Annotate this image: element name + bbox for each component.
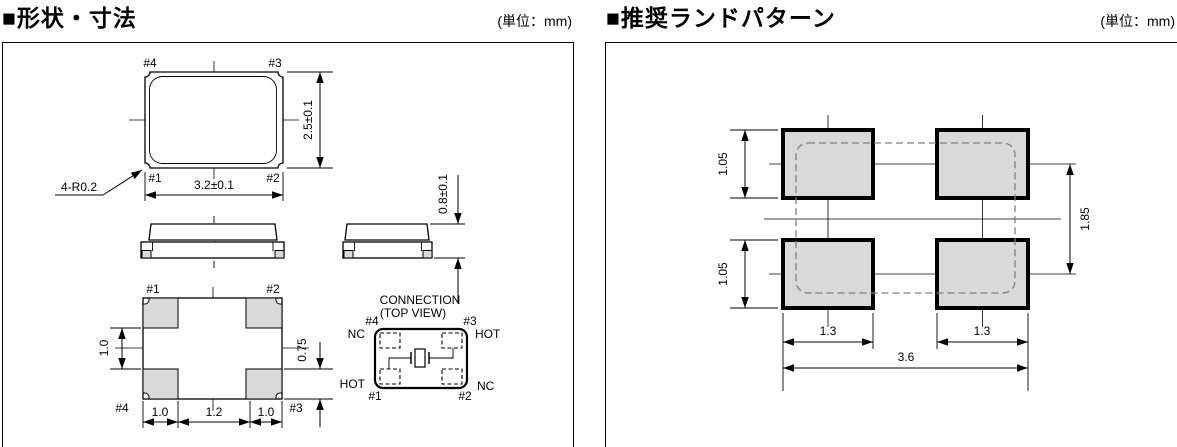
- land-pad-bottom-right: [937, 240, 1028, 308]
- land-pad-top-right: [937, 130, 1028, 198]
- left-panel-title: ■形状・寸法: [2, 4, 137, 34]
- top-view-width-dim: 3.2±0.1: [194, 178, 234, 192]
- bottom-view-pad-height-dim: 0.75: [295, 338, 309, 362]
- top-view-pad4-label: #4: [143, 56, 157, 70]
- bottom-pad-1: [143, 298, 178, 328]
- overall-width-dim: 3.6: [898, 350, 915, 364]
- datasheet-drawing-section: ■形状・寸法 (単位：mm) #4 #3 #1 #2 2.5±0.1: [0, 0, 1177, 447]
- connection-pad4-label: #4: [365, 314, 379, 328]
- left-panel-header: ■形状・寸法 (単位：mm): [2, 4, 572, 34]
- land-pad-bottom-left: [783, 240, 873, 308]
- connection-diagram: CONNECTION (TOP VIEW) #4 #3 NC HOT: [340, 293, 501, 403]
- bottom-view-pad3-label: #3: [289, 401, 303, 415]
- land-pattern-drawing: 1.05 1.05 1.85 1.3 1.3 3.6: [606, 43, 1177, 447]
- bottom-pad-3: [246, 369, 282, 399]
- connection-pad2-label: #2: [458, 389, 472, 403]
- bottom-pad-4: [143, 369, 178, 399]
- side-view-side: 0.8±0.1: [343, 174, 465, 303]
- right-panel-header: ■推奨ランドパターン (単位：mm): [606, 4, 1175, 34]
- connection-subtitle: (TOP VIEW): [380, 306, 446, 320]
- top-view-pad1-label: #1: [148, 171, 162, 185]
- corner-radius-note: 4-R0.2: [61, 180, 97, 194]
- shape-dimension-drawing-box: #4 #3 #1 #2 2.5±0.1 3.2±0.1 4-R0.2: [2, 42, 574, 447]
- connection-pad4-signal: NC: [348, 327, 366, 341]
- pad-height-top-dim: 1.05: [716, 152, 730, 176]
- bottom-view-pad4-label: #4: [115, 401, 129, 415]
- bottom-view-gap-dim: 1.0: [97, 339, 111, 356]
- bottom-view-pad-width-left-dim: 1.0: [152, 405, 169, 419]
- connection-title: CONNECTION: [380, 293, 461, 307]
- top-view: #4 #3 #1 #2 2.5±0.1 3.2±0.1 4-R0.2: [55, 56, 333, 201]
- top-view-pad2-label: #2: [266, 171, 280, 185]
- pad-width-left-dim: 1.3: [820, 324, 837, 338]
- connection-pad2-signal: NC: [477, 379, 495, 393]
- side-view-height-dim: 0.8±0.1: [436, 174, 450, 214]
- land-pattern: 1.05 1.05 1.85 1.3 1.3 3.6: [716, 115, 1092, 391]
- connection-pad1-label: #1: [368, 389, 382, 403]
- bottom-pad-2: [246, 298, 282, 328]
- right-panel-title: ■推奨ランドパターン: [606, 4, 836, 34]
- row-pitch-dim: 1.85: [1078, 207, 1092, 231]
- bottom-view: #1 #2 #4 #3 1.0 0.75: [97, 282, 333, 428]
- bottom-view-pad1-label: #1: [146, 282, 160, 296]
- connection-pad1-signal: HOT: [340, 377, 366, 391]
- pad-height-bottom-dim: 1.05: [716, 262, 730, 286]
- top-view-height-dim: 2.5±0.1: [301, 100, 315, 140]
- bottom-view-pad-width-right-dim: 1.0: [258, 405, 275, 419]
- pad-width-right-dim: 1.3: [974, 324, 991, 338]
- left-panel-unit: (単位：mm): [497, 11, 572, 34]
- side-view-front: [141, 216, 284, 269]
- shape-dimension-drawing: #4 #3 #1 #2 2.5±0.1 3.2±0.1 4-R0.2: [3, 43, 570, 447]
- bottom-view-pad-spacing-dim: 1.2: [206, 405, 223, 419]
- top-view-pad3-label: #3: [268, 56, 282, 70]
- right-panel-unit: (単位：mm): [1100, 11, 1175, 34]
- connection-pad3-signal: HOT: [475, 327, 501, 341]
- land-pattern-drawing-box: 1.05 1.05 1.85 1.3 1.3 3.6: [605, 42, 1177, 447]
- connection-pad3-label: #3: [463, 314, 477, 328]
- bottom-view-pad2-label: #2: [266, 282, 280, 296]
